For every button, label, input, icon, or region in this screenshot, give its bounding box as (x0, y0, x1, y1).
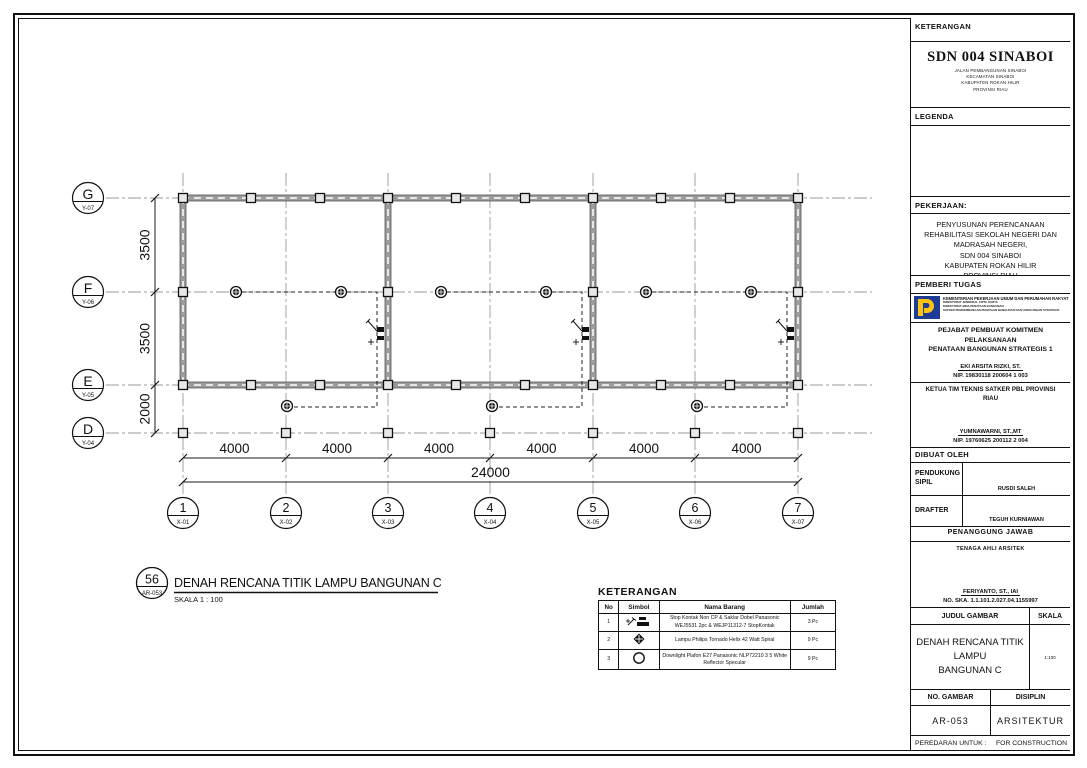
grid-bubble-row: DY-04 (73, 418, 104, 449)
grid-bubble-code: X-05 (587, 520, 600, 526)
pendukung-sipil-row: PENDUKUNG SIPIL RUSDI SALEH (911, 463, 1070, 496)
dim-label-vertical: 3500 (137, 323, 153, 354)
kementerian-sublines: DIREKTORAT JENDERAL CIPTA KARYA DIREKTOR… (943, 301, 1069, 313)
project-address: JALAN PEMBANGUNAN SINABOI KECAMATAN SINA… (911, 68, 1070, 93)
ppk-title: PEJABAT PEMBUAT KOMITMEN PELAKSANAAN PEN… (911, 326, 1070, 355)
switch-symbols (366, 319, 794, 345)
dim-label-bay: 4000 (219, 441, 249, 456)
lamp-symbol (282, 401, 293, 412)
peredaran-value: FOR CONSTRUCTION (996, 740, 1067, 747)
legend-row-no: 1 (599, 614, 619, 632)
penanggung-jawab-label: PENANGGUNG JAWAB (911, 527, 1070, 536)
column (794, 381, 803, 390)
column (247, 381, 256, 390)
lamp-symbol (487, 401, 498, 412)
plan-scale: SKALA 1 : 100 (174, 595, 223, 604)
column (316, 194, 325, 203)
column (726, 194, 735, 203)
arsitek-signer-ska: NO. SKA. 1.1.101.2.027.04.1155997 (911, 598, 1070, 604)
title-number: 56 (145, 573, 159, 587)
legend-header-simbol: Simbol (619, 601, 659, 614)
column (452, 194, 461, 203)
legend-title: KETERANGAN (598, 586, 840, 598)
column (384, 288, 393, 297)
lamp-symbol (336, 287, 347, 298)
ketua-tim-title: KETUA TIM TEKNIS SATKER PBL PROVINSI RIA… (911, 386, 1070, 403)
horizontal-dimensions: 40004000400040004000400024000 (179, 441, 802, 486)
grid-bubble-code: X-03 (382, 520, 395, 526)
column (726, 381, 735, 390)
grid-bubble-column: 2X-02 (271, 498, 302, 529)
grid-bubble-code: X-01 (177, 520, 190, 526)
legend-row-name: Stop Kontak Non CP & Saklar Dobel Panaso… (659, 614, 790, 632)
legend-row-no: 2 (599, 632, 619, 650)
ketua-signer-nip: NIP. 19760625 200112 2 004 (911, 438, 1070, 444)
legend-header-jumlah: Jumlah (790, 601, 835, 614)
tenaga-ahli-section: TENAGA AHLI ARSITEK FERIYANTO, ST., IAI … (911, 542, 1070, 608)
grid-bubble-number: 1 (180, 501, 187, 515)
grid-bubble-number: D (83, 421, 93, 437)
judul-gambar-header: JUDUL GAMBAR SKALA (911, 608, 1070, 625)
peredaran-label: PEREDARAN UNTUK : (915, 740, 986, 747)
grid-bubble-number: 3 (385, 501, 392, 515)
grid-bubble-column: 1X-01 (168, 498, 199, 529)
grid-bubble-column: 3X-03 (373, 498, 404, 529)
column (179, 194, 188, 203)
dim-label-bay: 4000 (322, 441, 352, 456)
drafter-role: DRAFTER (911, 496, 963, 526)
grid-bubble-column: 5X-05 (578, 498, 609, 529)
grid-bubble-number: E (83, 373, 92, 389)
disiplin-value: ARSITEKTUR (991, 706, 1070, 735)
no-gambar-value: AR-053 (911, 706, 991, 735)
grid-bubble-code: Y-06 (82, 300, 95, 306)
legend-row-qty: 3 Pc (790, 614, 835, 632)
judul-gambar-label: JUDUL GAMBAR (911, 608, 1030, 624)
circuit-line (242, 292, 377, 407)
grid-bubble-number: 4 (487, 501, 494, 515)
grid-bubble-row: GY-07 (73, 183, 104, 214)
disiplin-label: DISIPLIN (991, 690, 1070, 705)
title-code: AR-053 (142, 591, 163, 597)
column (794, 194, 803, 203)
drawing-title: 56AR-053DENAH RENCANA TITIK LAMPU BANGUN… (137, 568, 442, 605)
no-gambar-section: AR-053 ARSITEKTUR (911, 706, 1070, 736)
switch-stop-kontak-symbol (776, 319, 794, 345)
column (247, 194, 256, 203)
pemberi-tugas-label: PEMBERI TUGAS (911, 276, 1070, 289)
grid-bubble-number: 5 (590, 501, 597, 515)
grid-bubble-number: 6 (692, 501, 699, 515)
arsitek-signer-name: FERIYANTO, ST., IAI (961, 589, 1020, 596)
dim-label-bay: 4000 (731, 441, 761, 456)
legend-row-qty: 9 Pc (790, 632, 835, 650)
column (521, 194, 530, 203)
pekerjaan-header: PEKERJAAN: (911, 197, 1070, 214)
legend-header-no: No (599, 601, 619, 614)
ketua-tim-section: KETUA TIM TEKNIS SATKER PBL PROVINSI RIA… (911, 383, 1070, 448)
pemberi-tugas-section: KEMENTERIAN PEKERJAAN UMUM DAN PERUMAHAN… (911, 294, 1070, 323)
circuit-line (447, 292, 582, 407)
pendukung-sipil-name: RUSDI SALEH (963, 486, 1070, 492)
column (452, 381, 461, 390)
dim-label-vertical: 2000 (137, 393, 153, 424)
lampu-tornado-icon (619, 632, 659, 650)
dim-label-bay: 4000 (629, 441, 659, 456)
dim-label-total: 24000 (471, 464, 510, 480)
lamp-symbol (231, 287, 242, 298)
drafter-row: DRAFTER TEGUH KURNIAWAN (911, 496, 1070, 527)
grid-bubble-row: FY-06 (73, 277, 104, 308)
grid-bubble-column: 4X-04 (475, 498, 506, 529)
switch-stop-kontak-symbol (366, 319, 384, 345)
plan-title: DENAH RENCANA TITIK LAMPU BANGUNAN C (174, 576, 442, 590)
penanggung-jawab-header: PENANGGUNG JAWAB (911, 527, 1070, 542)
dim-label-vertical: 3500 (137, 229, 153, 260)
ppk-signer-name: EKI ARSITA RIZKI, ST. (958, 364, 1022, 371)
legenda-label: LEGENDA (911, 108, 1070, 121)
column (657, 381, 666, 390)
column (794, 288, 803, 297)
lamp-symbol (746, 287, 757, 298)
circuit-line (652, 292, 787, 407)
wall (180, 195, 801, 201)
judul-gambar-value: DENAH RENCANA TITIK LAMPU BANGUNAN C (911, 625, 1030, 689)
legenda-empty-box (911, 126, 1070, 197)
drawing-sheet: 3500350020004000400040004000400040002400… (0, 0, 1087, 768)
lamp-symbol (436, 287, 447, 298)
column (657, 194, 666, 203)
titleblock-keterangan-section: KETERANGAN (911, 18, 1070, 42)
keterangan-label: KETERANGAN (911, 18, 1070, 31)
grid-bubble-number: F (84, 280, 93, 296)
grid-bubble-column: 6X-06 (680, 498, 711, 529)
legend-row: 2 Lampu Philips Tornado Helix 42 Watt Sp… (599, 632, 836, 650)
ketua-signer-name: YUMNAWARNI, ST.,MT (958, 429, 1024, 436)
downlight-icon (619, 650, 659, 670)
grid-bubble-number: 7 (795, 501, 802, 515)
legend-row-name: Downlight Plafon E27 Panasonic NLP72210 … (659, 650, 790, 670)
grid-bubble-code: Y-05 (82, 393, 95, 399)
column (179, 429, 188, 438)
pemberi-tugas-header: PEMBERI TUGAS (911, 276, 1070, 294)
lamp-symbol (692, 401, 703, 412)
legend-row: 3 Downlight Plafon E27 Panasonic NLP7221… (599, 650, 836, 670)
lamp-symbol (641, 287, 652, 298)
peredaran-section: PEREDARAN UNTUK : FOR CONSTRUCTION (911, 736, 1070, 750)
column (179, 288, 188, 297)
grid-bubble-column: 7X-07 (783, 498, 814, 529)
stop-kontak-saklar-icon (619, 614, 659, 632)
legend-row-qty: 9 Pc (790, 650, 835, 670)
lamp-symbol (541, 287, 552, 298)
grid-bubble-row: EY-05 (73, 370, 104, 401)
column (316, 381, 325, 390)
grid-bubble-number: 2 (283, 501, 290, 515)
grid-bubble-code: X-02 (280, 520, 293, 526)
grid-bubble-code: Y-04 (82, 441, 95, 447)
skala-label: SKALA (1030, 608, 1070, 624)
dim-label-bay: 4000 (424, 441, 454, 456)
dim-label-bay: 4000 (526, 441, 556, 456)
pendukung-sipil-role: PENDUKUNG SIPIL (911, 463, 963, 495)
column (521, 381, 530, 390)
pekerjaan-text: PENYUSUNAN PERENCANAAN REHABILITASI SEKO… (911, 220, 1070, 276)
legend-header-nama: Nama Barang (659, 601, 790, 614)
legenda-section: LEGENDA (911, 108, 1070, 126)
column (589, 429, 598, 438)
ppk-signer-nip: NIP. 19830118 200604 1 003 (911, 373, 1070, 379)
lamp-points (231, 287, 757, 412)
column (384, 429, 393, 438)
legend-row-no: 3 (599, 650, 619, 670)
judul-gambar-section: DENAH RENCANA TITIK LAMPU BANGUNAN C 1:1… (911, 625, 1070, 690)
skala-value: 1:100 (1030, 625, 1070, 689)
column (282, 429, 291, 438)
pekerjaan-label: PEKERJAAN: (911, 197, 1070, 210)
column (384, 194, 393, 203)
legend-row: 1 Stop Kontak Non CP & Saklar Dobel Pana… (599, 614, 836, 632)
column (589, 381, 598, 390)
column (691, 429, 700, 438)
switch-stop-kontak-symbol (571, 319, 589, 345)
column (589, 194, 598, 203)
grid-bubble-code: X-06 (689, 520, 702, 526)
project-name: SDN 004 SINABOI (911, 49, 1070, 66)
pekerjaan-section: PENYUSUNAN PERENCANAAN REHABILITASI SEKO… (911, 214, 1070, 276)
grid-bubble-number: G (83, 186, 94, 202)
column (179, 381, 188, 390)
tenaga-ahli-label: TENAGA AHLI ARSITEK (911, 542, 1070, 552)
grid-bubble-code: X-07 (792, 520, 805, 526)
column (384, 381, 393, 390)
grid-bubble-code: X-04 (484, 520, 497, 526)
no-gambar-header: NO. GAMBAR DISIPLIN (911, 690, 1070, 706)
title-block: KETERANGAN SDN 004 SINABOI JALAN PEMBANG… (910, 18, 1070, 750)
legend-table: KETERANGAN No Simbol Nama Barang Jumlah … (598, 586, 840, 670)
grid-bubble-code: Y-07 (82, 206, 95, 212)
vertical-dimensions: 350035002000 (137, 194, 159, 437)
kementerian-pu-logo (914, 296, 940, 323)
column (589, 288, 598, 297)
dibuat-oleh-header: DIBUAT OLEH (911, 448, 1070, 463)
project-identity-section: SDN 004 SINABOI JALAN PEMBANGUNAN SINABO… (911, 42, 1070, 108)
no-gambar-label: NO. GAMBAR (911, 690, 991, 705)
wall (180, 382, 801, 388)
legend-header-row: No Simbol Nama Barang Jumlah (599, 601, 836, 614)
column (794, 429, 803, 438)
ppk-section: PEJABAT PEMBUAT KOMITMEN PELAKSANAAN PEN… (911, 323, 1070, 383)
column (486, 429, 495, 438)
dibuat-oleh-label: DIBUAT OLEH (911, 448, 1070, 459)
drafter-name: TEGUH KURNIAWAN (963, 517, 1070, 523)
legend-row-name: Lampu Philips Tornado Helix 42 Watt Spir… (659, 632, 790, 650)
